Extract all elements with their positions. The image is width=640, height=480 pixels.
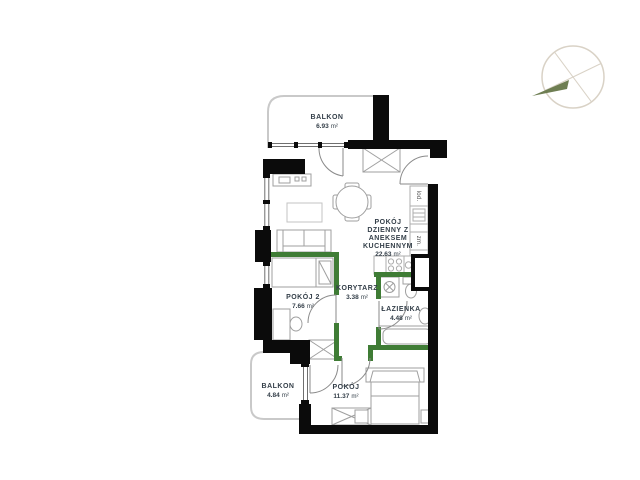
room-label-balkon-top: BALKON bbox=[311, 114, 344, 121]
balcony-divider-wall bbox=[373, 95, 389, 145]
double-bed bbox=[366, 368, 424, 424]
wall-bedroom2-corner bbox=[290, 353, 310, 364]
wall-stub-nw bbox=[263, 159, 305, 174]
room-label-balkon-bottom: BALKON bbox=[262, 383, 295, 390]
single-bed bbox=[272, 258, 333, 287]
floor-plan-page: BALKON 6.93m² POKÓJ DZIENNY Z ANEKSEM KU… bbox=[0, 0, 640, 480]
room-area-lazienka: 4.48m² bbox=[390, 315, 412, 322]
wall-left-lower bbox=[254, 288, 272, 340]
room-area-balkon-bottom: 4.84m² bbox=[267, 392, 289, 399]
wardrobe-living bbox=[363, 148, 400, 172]
room-label-pokoj2: POKÓJ 2 bbox=[286, 292, 320, 301]
sofa bbox=[277, 230, 331, 252]
wall-corner-ne bbox=[430, 140, 447, 158]
tv-cabinet-knob bbox=[295, 177, 299, 181]
room-area-living: 22.63m² bbox=[375, 251, 401, 258]
room-area-pokoj2: 7.66m² bbox=[292, 303, 314, 310]
washing-machine-icon bbox=[380, 277, 399, 297]
room-area-pokoj: 11.37m² bbox=[333, 393, 358, 400]
desk bbox=[273, 309, 290, 340]
nightstand bbox=[355, 410, 368, 423]
room-label-korytarz: KORYTARZ bbox=[336, 285, 378, 292]
oven-icon bbox=[413, 209, 425, 221]
room-label-living-2: DZIENNY Z bbox=[367, 227, 409, 234]
kitchen-counter-bottom bbox=[374, 256, 413, 274]
bathtub-icon bbox=[379, 326, 435, 347]
room-area-balkon-top: 6.93m² bbox=[316, 123, 338, 130]
dishwasher-label: zm. bbox=[415, 236, 421, 247]
wall-right bbox=[428, 184, 438, 434]
wardrobe-corner bbox=[309, 340, 338, 359]
floor-plan: BALKON 6.93m² POKÓJ DZIENNY Z ANEKSEM KU… bbox=[0, 0, 640, 480]
round-table bbox=[336, 186, 368, 218]
wall-bottom bbox=[299, 425, 438, 434]
wall-sw-corner bbox=[299, 404, 311, 434]
room-label-living-4: KUCHENNYM bbox=[363, 243, 413, 250]
room-label-living-1: POKÓJ bbox=[374, 217, 401, 226]
installation-shaft bbox=[413, 256, 431, 289]
wall-left-mid bbox=[255, 230, 271, 262]
tv-cabinet-knob bbox=[302, 177, 306, 181]
room-label-living-3: ANEKSEM bbox=[369, 235, 408, 242]
wall-bedroom2-bottom bbox=[263, 340, 310, 353]
fridge-label: lod. bbox=[415, 191, 421, 202]
room-area-korytarz: 3.38m² bbox=[346, 294, 368, 301]
room-label-lazienka: ŁAZIENKA bbox=[381, 306, 420, 313]
coffee-table bbox=[287, 203, 322, 222]
room-label-pokoj: POKÓJ bbox=[332, 382, 359, 391]
tv-cabinet-detail bbox=[279, 177, 290, 183]
